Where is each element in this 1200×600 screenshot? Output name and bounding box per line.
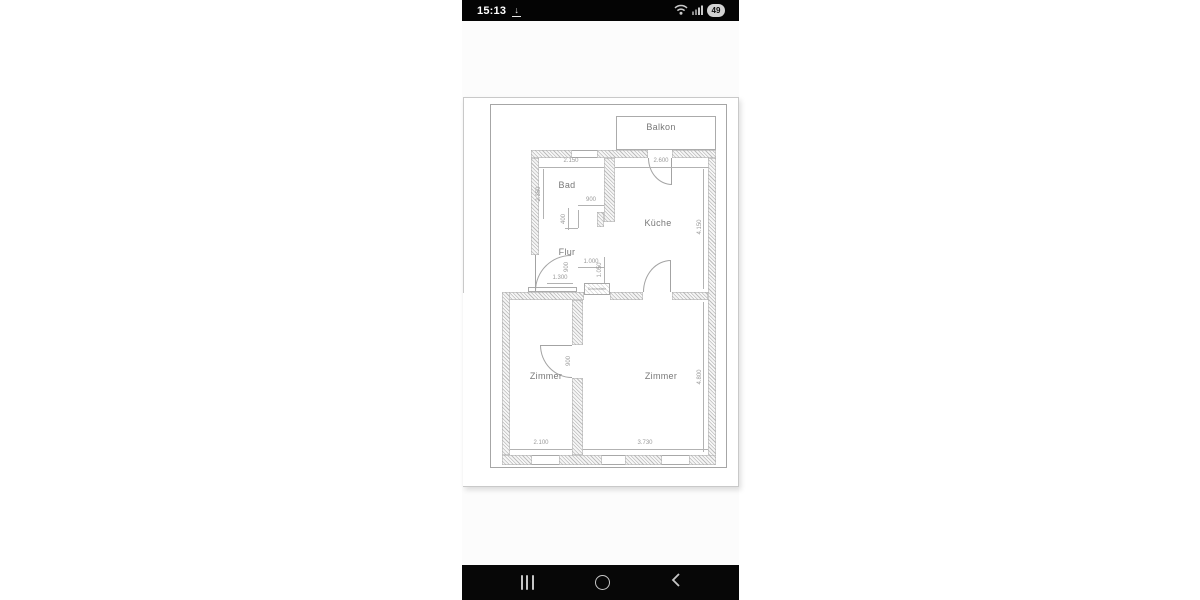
document-viewer[interactable]: Balkon: [462, 21, 739, 565]
wall-segment: [610, 292, 643, 300]
dim-label: 2.350: [536, 186, 542, 201]
wall-segment: [531, 150, 572, 158]
door-leaf: [671, 158, 672, 185]
dimension-line: [578, 205, 604, 206]
dimension-line: [568, 208, 569, 230]
wifi-icon: [674, 2, 688, 20]
back-button[interactable]: [671, 572, 681, 593]
navigation-bar: [462, 565, 739, 600]
wall-segment: [689, 455, 716, 465]
dim-label: 1.050: [597, 262, 603, 277]
dim-label: 4.150: [697, 219, 703, 234]
back-icon: [671, 572, 681, 588]
dim-label: 900: [566, 356, 572, 366]
cellular-signal-icon: [692, 2, 703, 20]
wall-segment: [604, 158, 615, 222]
wall-segment: [572, 300, 583, 345]
dim-label: 400: [561, 214, 567, 224]
dim-label: 4.800: [697, 369, 703, 384]
wall-segment: [625, 455, 662, 465]
dim-label: 2.100: [533, 440, 548, 446]
wall-segment: [502, 455, 532, 465]
room-label-zimmer-left: Zimmer: [530, 371, 562, 381]
screenshot-canvas: 15:13 ↓ 49: [0, 0, 1200, 600]
clock: 15:13: [477, 5, 506, 17]
wall-segment: [597, 212, 604, 227]
battery-level-badge: 49: [707, 4, 725, 17]
room-label-kueche: Küche: [644, 218, 671, 228]
dimension-line: [543, 169, 544, 219]
download-icon: ↓: [512, 5, 521, 17]
window: [572, 150, 597, 158]
window: [662, 455, 689, 465]
wall-segment: [531, 158, 539, 255]
phone-screen: 15:13 ↓ 49: [462, 0, 739, 600]
detail-line: [578, 210, 579, 228]
wall-segment: [672, 150, 716, 158]
dimension-line: [604, 257, 605, 283]
dimension-line: [615, 167, 708, 168]
door-leaf: [535, 255, 536, 291]
page-edge-right: [738, 97, 739, 487]
home-button[interactable]: [595, 575, 610, 590]
dimension-line: [703, 169, 704, 289]
window: [532, 455, 559, 465]
dimension-line: [547, 283, 573, 284]
wall-segment: [597, 150, 648, 158]
detail-line: [565, 228, 578, 229]
door-leaf: [540, 345, 572, 346]
chimney-box: Schornstein: [584, 283, 610, 295]
page-edge-bottom: [463, 486, 739, 487]
wall-segment: [505, 292, 584, 300]
room-label-balkon: Balkon: [646, 122, 675, 132]
room-label-zimmer-right: Zimmer: [645, 371, 677, 381]
room-label-bad: Bad: [559, 180, 576, 190]
wall-segment: [502, 292, 510, 455]
dim-label: 900: [564, 262, 570, 272]
page-edge-left: [463, 97, 464, 293]
dim-label: 900: [586, 197, 596, 203]
wall-segment: [572, 378, 583, 455]
dim-label: 3.730: [637, 440, 652, 446]
status-bar-right: 49: [674, 2, 725, 20]
wall-segment: [708, 158, 716, 465]
dimension-line: [583, 449, 708, 450]
recents-button[interactable]: [521, 575, 534, 590]
window: [602, 455, 625, 465]
floorplan-page: Balkon: [463, 97, 739, 487]
page-edge-top: [463, 97, 739, 98]
dimension-line: [703, 302, 704, 452]
dim-label: 1.300: [552, 275, 567, 281]
dimension-line: [510, 449, 572, 450]
dim-label: 2.150: [563, 158, 578, 164]
dim-label: 2.600: [653, 158, 668, 164]
wall-segment: [559, 455, 602, 465]
chimney-label: Schornstein: [588, 287, 606, 291]
wall-segment: [672, 292, 708, 300]
status-bar-left: 15:13 ↓: [477, 5, 521, 17]
door-leaf: [670, 260, 671, 292]
dimension-line: [539, 167, 604, 168]
status-bar: 15:13 ↓ 49: [462, 0, 739, 21]
room-label-flur: Flur: [559, 247, 576, 257]
